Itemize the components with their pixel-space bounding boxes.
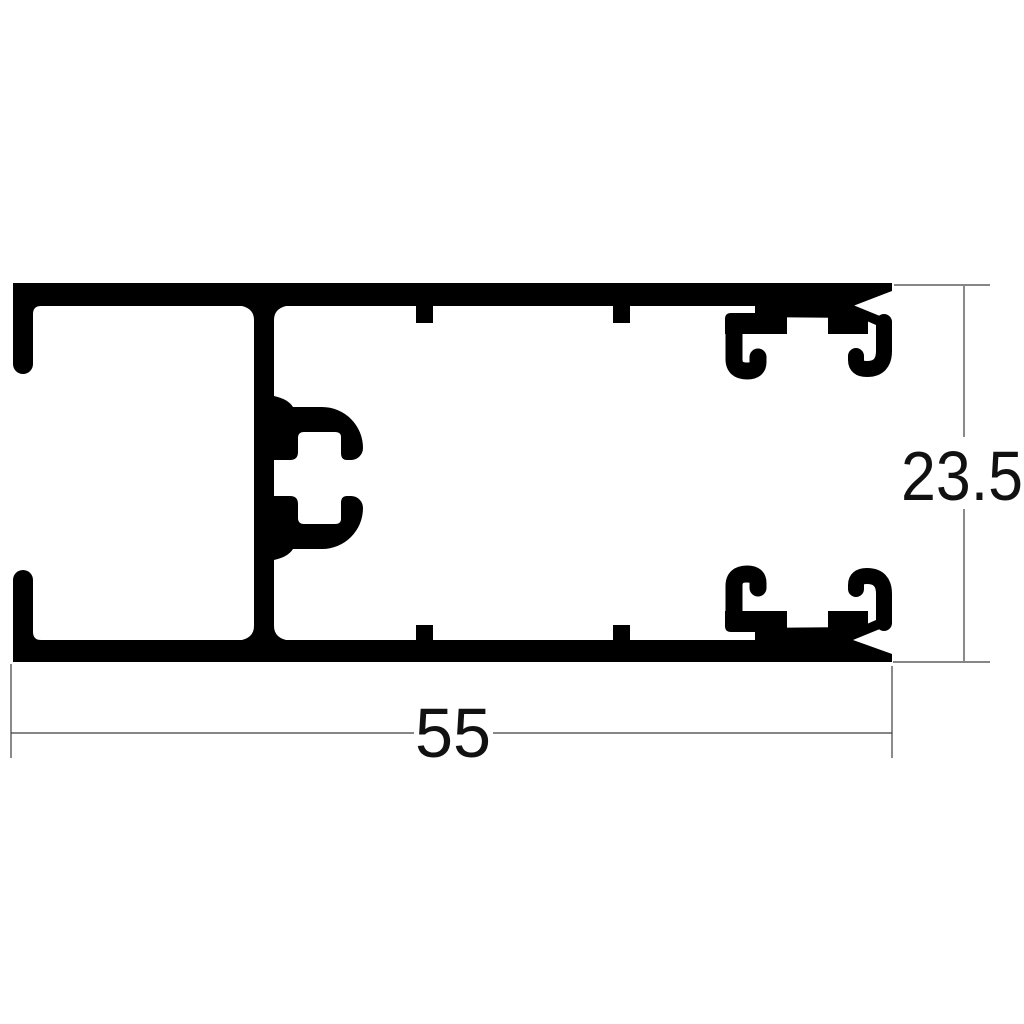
height-dimension-value: 23.5 bbox=[901, 437, 1023, 515]
width-dimension-value: 55 bbox=[415, 694, 491, 772]
central-web bbox=[242, 306, 286, 640]
bottom-bead-cross-right bbox=[828, 611, 868, 632]
height-dimension: 23.5 bbox=[893, 285, 1023, 662]
technical-drawing-canvas: 23.5 55 bbox=[0, 0, 1024, 1024]
web-clip-upper-arm bbox=[274, 396, 363, 460]
profile-cross-section-drawing: 23.5 55 bbox=[0, 0, 1024, 1024]
profile-outline bbox=[13, 283, 892, 662]
bottom-bead-channel bbox=[725, 574, 892, 640]
dimensioning: 23.5 55 bbox=[11, 285, 1023, 772]
width-dimension: 55 bbox=[11, 664, 892, 772]
top-bead-cross-right bbox=[828, 313, 868, 334]
top-bead-channel bbox=[725, 305, 892, 371]
web-clip-lower-arm bbox=[274, 496, 363, 560]
